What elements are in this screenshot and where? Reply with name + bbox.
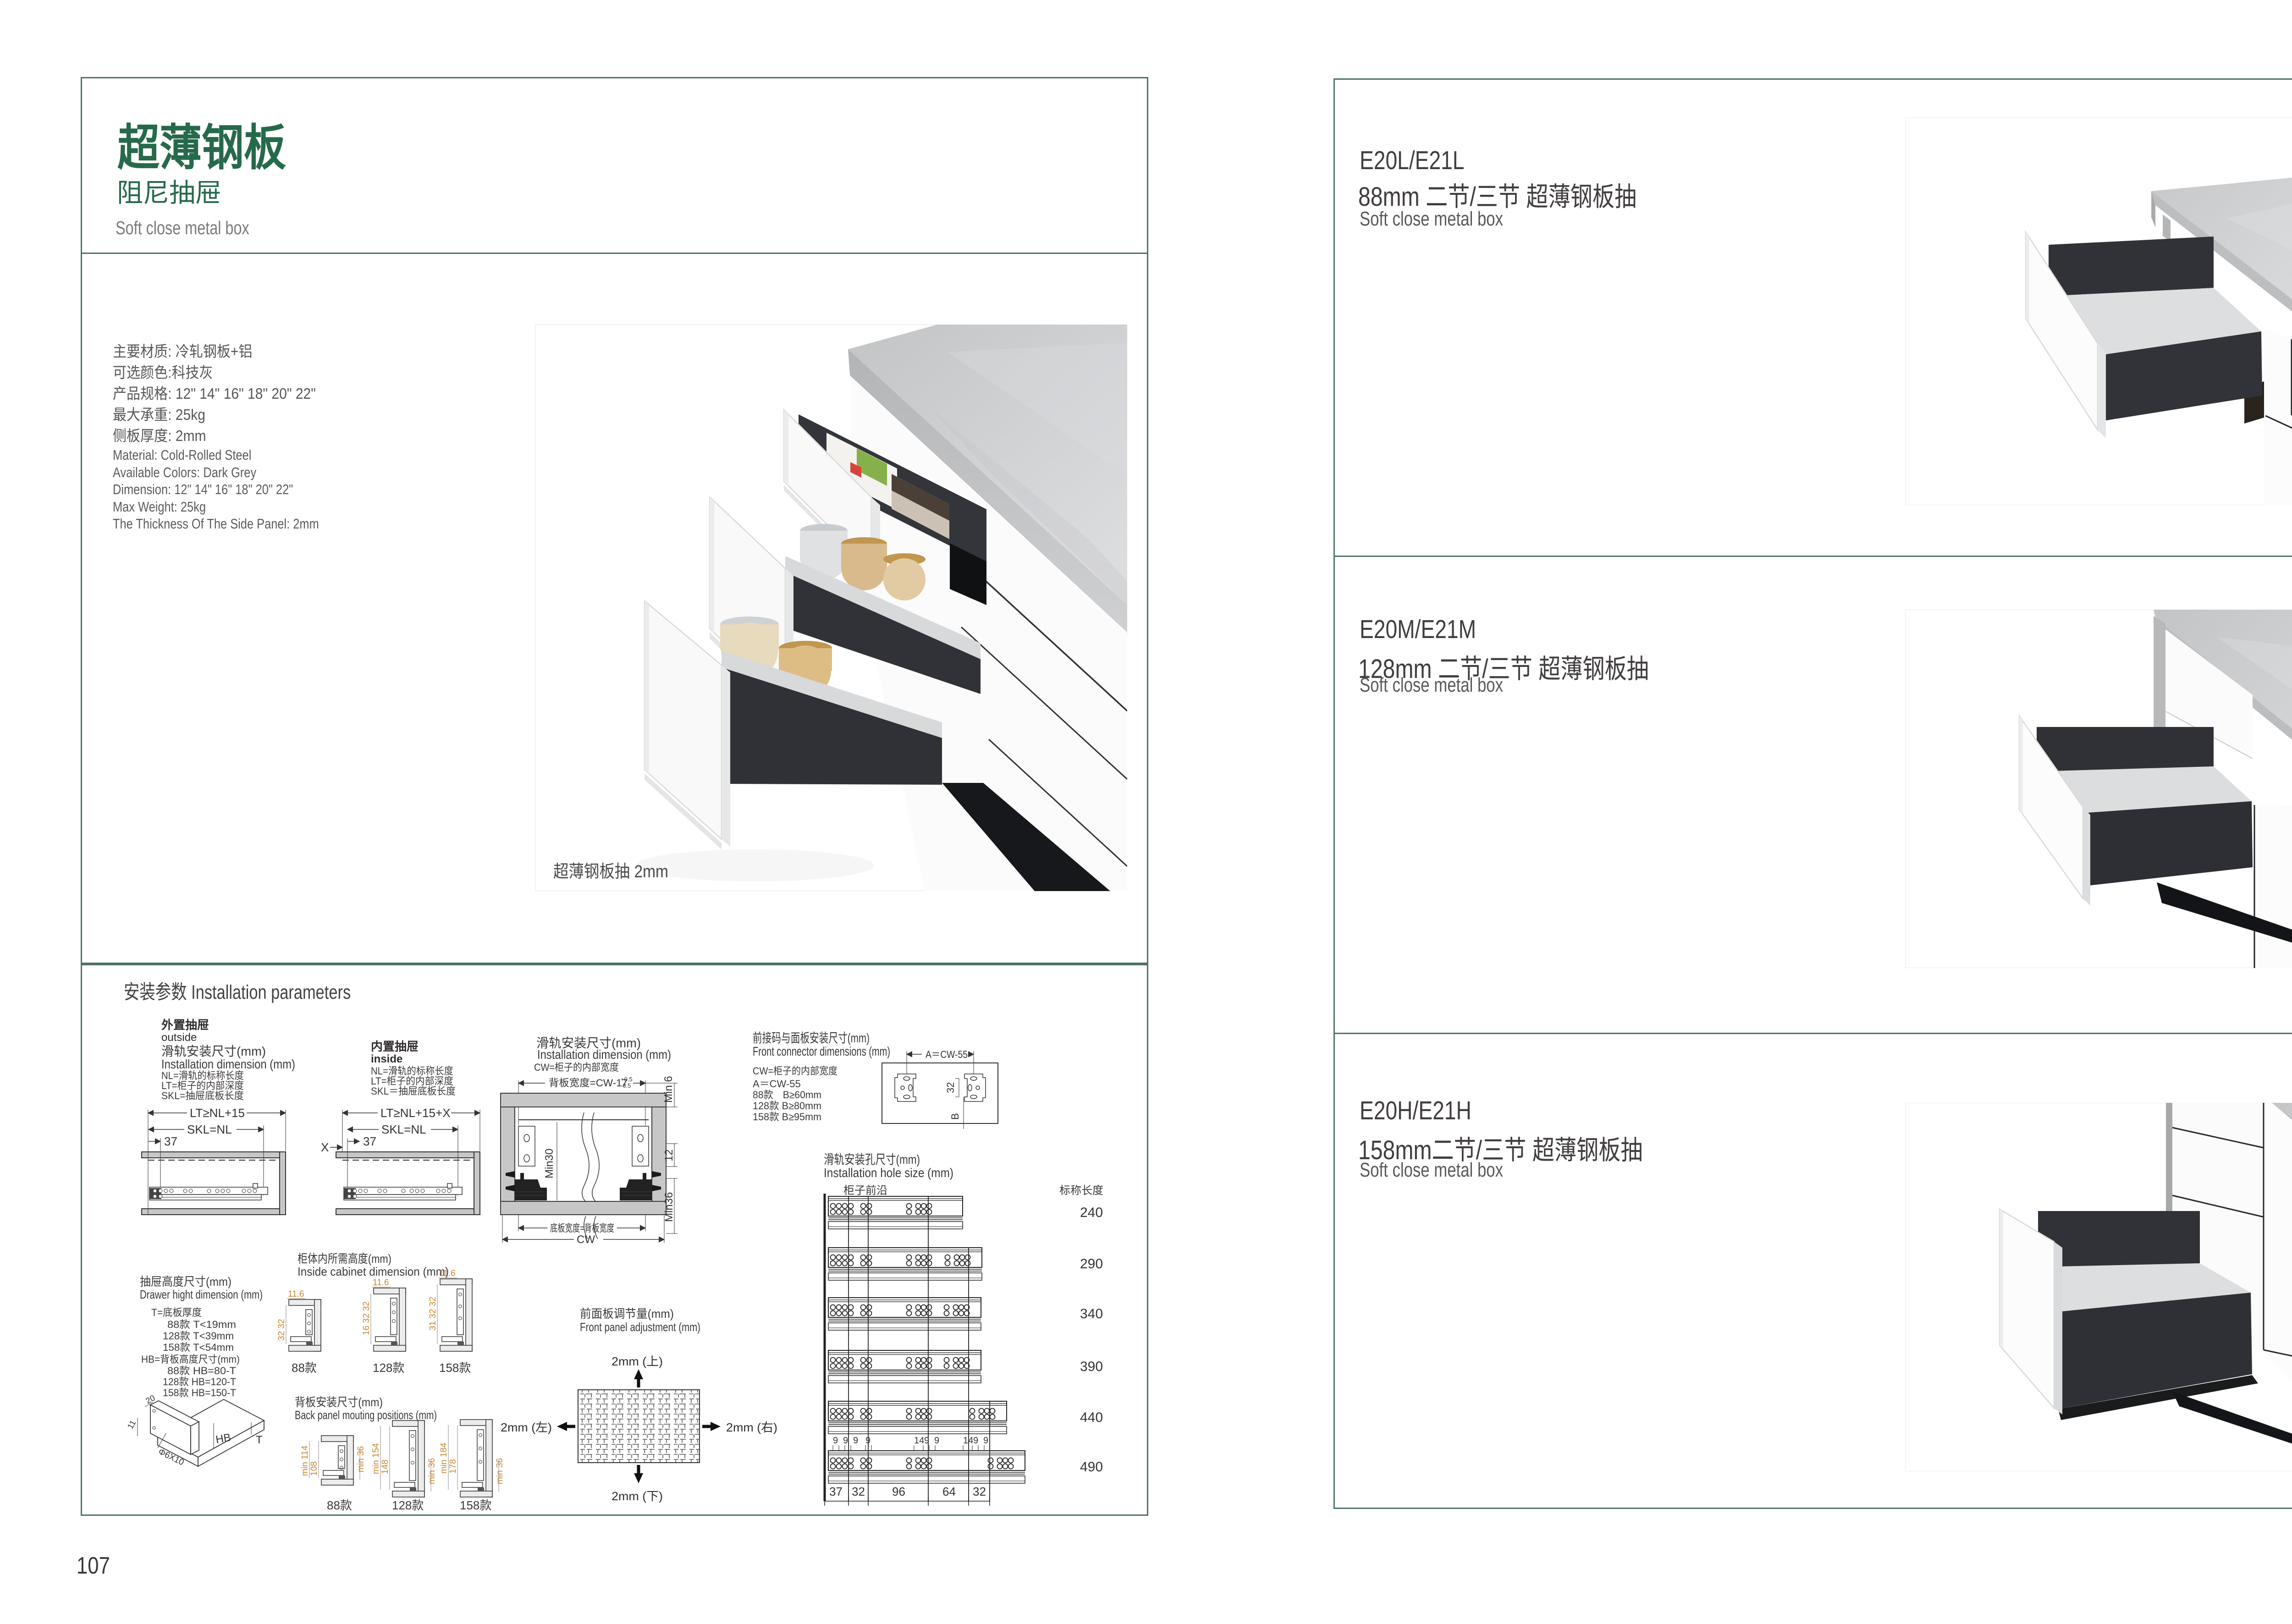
svg-text:88款 B≥60mm: 88款 B≥60mm	[753, 1089, 821, 1101]
svg-text:11: 11	[126, 1419, 138, 1431]
svg-text:LT≥NL+15+X: LT≥NL+15+X	[380, 1106, 451, 1120]
svg-text:32: 32	[973, 1485, 986, 1498]
svg-text:min 36: min 36	[495, 1458, 505, 1484]
svg-text:内置抽屉: 内置抽屉	[371, 1040, 419, 1053]
svg-text:9: 9	[934, 1436, 939, 1446]
svg-text:A＝CW-55: A＝CW-55	[753, 1078, 801, 1090]
svg-text:290: 290	[1080, 1256, 1103, 1272]
svg-text:128款: 128款	[373, 1361, 404, 1375]
svg-text:490: 490	[1080, 1459, 1103, 1475]
svg-text:158款: 158款	[460, 1498, 491, 1512]
svg-text:64: 64	[942, 1485, 956, 1498]
svg-text:inside: inside	[371, 1053, 402, 1065]
svg-text:158款 T<54mm: 158款 T<54mm	[163, 1342, 234, 1353]
svg-text:HB: HB	[215, 1431, 232, 1446]
svg-text:T: T	[256, 1434, 263, 1446]
svg-text:Min 6: Min 6	[662, 1076, 675, 1103]
svg-text:9: 9	[924, 1436, 929, 1446]
svg-text:2mm (下): 2mm (下)	[612, 1489, 663, 1503]
svg-text:标称长度: 标称长度	[1059, 1184, 1103, 1197]
svg-text:min 114: min 114	[300, 1445, 310, 1476]
svg-text:88款 HB=80-T: 88款 HB=80-T	[167, 1365, 236, 1376]
svg-text:X: X	[321, 1140, 329, 1154]
svg-text:32: 32	[945, 1082, 956, 1093]
svg-text:37: 37	[164, 1134, 177, 1148]
svg-text:128款 T<39mm: 128款 T<39mm	[163, 1330, 234, 1342]
svg-text:390: 390	[1080, 1359, 1103, 1374]
svg-text:滑轨安装孔尺寸(mm): 滑轨安装孔尺寸(mm)	[824, 1152, 920, 1167]
svg-text:Drawer hight dimension (mm): Drawer hight dimension (mm)	[140, 1288, 263, 1301]
svg-text:9: 9	[833, 1436, 838, 1446]
svg-text:88款: 88款	[327, 1498, 352, 1512]
svg-text:min 184: min 184	[439, 1442, 449, 1474]
svg-text:SKL=抽屉底板长度: SKL=抽屉底板长度	[161, 1090, 244, 1101]
svg-text:SKL=NL: SKL=NL	[381, 1123, 426, 1136]
svg-text:SKL=NL: SKL=NL	[187, 1123, 232, 1136]
svg-text:11.6: 11.6	[373, 1278, 389, 1288]
svg-text:158款 HB=150-T: 158款 HB=150-T	[163, 1387, 236, 1398]
svg-text:LT≥NL+15: LT≥NL+15	[190, 1106, 245, 1120]
svg-text:158款: 158款	[439, 1361, 471, 1375]
svg-text:柜子前沿: 柜子前沿	[843, 1184, 887, 1197]
svg-text:128款: 128款	[392, 1498, 424, 1512]
svg-text:16 32 32: 16 32 32	[362, 1301, 371, 1335]
svg-text:外置抽屉: 外置抽屉	[161, 1018, 209, 1032]
svg-text:12: 12	[663, 1149, 675, 1162]
svg-text:2mm (左): 2mm (左)	[501, 1420, 552, 1434]
svg-text:9: 9	[843, 1436, 848, 1446]
svg-text:148: 148	[380, 1459, 390, 1474]
svg-text:CW=柜子的内部宽度: CW=柜子的内部宽度	[534, 1062, 619, 1073]
svg-text:2mm (右): 2mm (右)	[726, 1420, 777, 1434]
svg-text:底板宽度=背板宽度: 底板宽度=背板宽度	[550, 1222, 614, 1234]
svg-text:11.6: 11.6	[439, 1269, 456, 1278]
svg-text:Back panel mouting positions (: Back panel mouting positions (mm)	[295, 1408, 437, 1422]
svg-text:178: 178	[448, 1459, 458, 1474]
svg-text:9: 9	[853, 1436, 858, 1446]
svg-text:128款 B≥80mm: 128款 B≥80mm	[753, 1100, 821, 1112]
svg-text:37: 37	[363, 1134, 376, 1148]
svg-text:158款 B≥95mm: 158款 B≥95mm	[753, 1111, 821, 1123]
svg-text:14: 14	[963, 1436, 973, 1446]
svg-text:108: 108	[309, 1461, 319, 1476]
svg-text:88款 T<19mm: 88款 T<19mm	[167, 1319, 236, 1330]
svg-text:Min36: Min36	[663, 1192, 675, 1222]
svg-text:9: 9	[983, 1436, 988, 1446]
svg-text:128款 HB=120-T: 128款 HB=120-T	[163, 1376, 236, 1387]
svg-text:Installation hole size (mm): Installation hole size (mm)	[824, 1166, 953, 1180]
svg-text:Front connector dimensions (m: Front connector dimensions (mm)	[753, 1044, 890, 1058]
svg-text:88款: 88款	[292, 1361, 317, 1375]
svg-text:背板安装尺寸(mm): 背板安装尺寸(mm)	[295, 1395, 383, 1409]
svg-text:outside: outside	[161, 1031, 197, 1044]
svg-text:440: 440	[1080, 1410, 1103, 1425]
svg-text:CW=柜子的内部宽度: CW=柜子的内部宽度	[753, 1065, 837, 1077]
svg-text:340: 340	[1080, 1306, 1103, 1321]
svg-text:32 32: 32 32	[277, 1319, 286, 1341]
svg-text:B: B	[949, 1113, 961, 1120]
svg-text:Min30: Min30	[543, 1149, 556, 1178]
svg-text:背板宽度=CW-17: 背板宽度=CW-17	[549, 1077, 628, 1089]
svg-text:+0.5: +0.5	[621, 1076, 633, 1083]
svg-text:31 32 32: 31 32 32	[428, 1297, 438, 1331]
svg-text:滑轨安装尺寸(mm): 滑轨安装尺寸(mm)	[161, 1044, 266, 1058]
svg-text:96: 96	[892, 1485, 905, 1498]
svg-text:2mm (上): 2mm (上)	[612, 1354, 663, 1368]
svg-text:A＝CW-55: A＝CW-55	[926, 1049, 968, 1060]
svg-text:Front panel adjustment (mm): Front panel adjustment (mm)	[580, 1320, 700, 1334]
svg-text:32: 32	[852, 1485, 865, 1498]
svg-text:37: 37	[829, 1485, 843, 1498]
svg-text:min 154: min 154	[371, 1443, 381, 1474]
svg-text:Installation dimension (mm): Installation dimension (mm)	[537, 1047, 671, 1062]
svg-text:HB=背板高度尺寸(mm): HB=背板高度尺寸(mm)	[141, 1354, 240, 1365]
svg-text:前接码与面板安装尺寸(mm): 前接码与面板安装尺寸(mm)	[753, 1031, 870, 1045]
svg-text:14: 14	[914, 1436, 924, 1446]
svg-text:柜体内所需高度(mm): 柜体内所需高度(mm)	[298, 1252, 391, 1266]
svg-text:抽屉高度尺寸(mm): 抽屉高度尺寸(mm)	[140, 1275, 231, 1288]
svg-text:-0.5: -0.5	[621, 1082, 631, 1089]
svg-text:SKL＝抽屉底板长度: SKL＝抽屉底板长度	[371, 1085, 456, 1097]
svg-text:CW: CW	[577, 1233, 595, 1246]
svg-text:9: 9	[865, 1436, 871, 1446]
svg-text:min 36: min 36	[427, 1458, 437, 1484]
svg-text:T=底板厚度: T=底板厚度	[151, 1307, 202, 1318]
svg-text:前面板调节量(mm): 前面板调节量(mm)	[580, 1307, 674, 1321]
svg-text:min 36: min 36	[356, 1446, 366, 1472]
svg-text:11.6: 11.6	[288, 1289, 304, 1299]
svg-text:240: 240	[1080, 1205, 1103, 1220]
svg-text:Inside cabinet dimension (mm): Inside cabinet dimension (mm)	[298, 1265, 449, 1278]
svg-text:9: 9	[973, 1436, 978, 1446]
svg-text:Installation dimension (mm): Installation dimension (mm)	[161, 1057, 295, 1071]
